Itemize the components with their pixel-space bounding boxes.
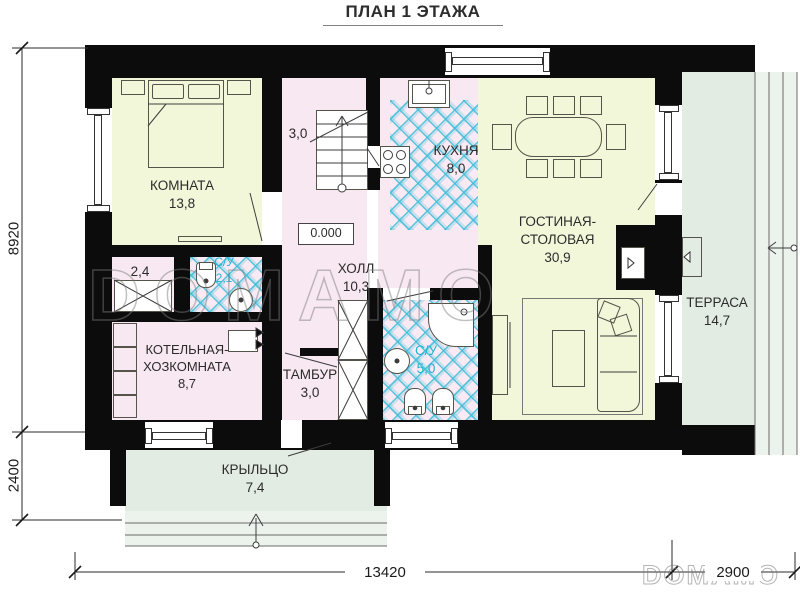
label-living: ГОСТИНАЯ-СТОЛОВАЯ 30,9 [500, 213, 615, 266]
chair [526, 159, 548, 178]
label-hall: ХОЛЛ 10,3 [326, 260, 386, 296]
window-frame [94, 115, 102, 205]
dimension-height-porch: 2400 [6, 436, 23, 516]
wall [367, 288, 383, 420]
window-sill [145, 428, 152, 444]
door-opening [655, 183, 682, 215]
kitchen-sink-basin [412, 84, 446, 104]
bench [178, 236, 222, 242]
room-area: 3,0 [280, 384, 340, 402]
washbasin-icon [229, 288, 253, 312]
page-title: ПЛАН 1 ЭТАЖА [323, 2, 503, 26]
window-frame [152, 432, 206, 440]
dining-table [515, 117, 602, 157]
wall [85, 245, 282, 257]
window-sill [87, 205, 110, 212]
wall [366, 78, 380, 190]
window-sill [659, 173, 679, 180]
stairs-icon [316, 110, 368, 190]
label-closet: 2,4 [116, 263, 164, 281]
wardrobe-icon [338, 300, 368, 360]
wardrobe-icon [338, 360, 368, 420]
window-sill [87, 108, 110, 115]
room-name: ТЕРРАСА [686, 295, 748, 310]
label-stairs: 3,0 [278, 125, 318, 143]
room-area: 13,8 [122, 195, 242, 213]
room-area: 14,7 [672, 312, 762, 330]
room-area: 3,0 [278, 125, 318, 143]
chair [553, 159, 575, 178]
door-opening [366, 146, 380, 168]
chair [526, 96, 548, 115]
wall [262, 257, 282, 420]
room-area: 30,9 [500, 249, 615, 267]
room-name: С/У [415, 343, 437, 358]
room-area: 5,0 [398, 360, 454, 378]
window-sill [659, 105, 679, 112]
window-sill [206, 428, 213, 444]
label-kitchen: КУХНЯ 8,0 [416, 142, 496, 178]
pillow [152, 84, 184, 99]
room-hall-lower [282, 288, 338, 348]
dimension-width-terrace: 2900 [705, 564, 761, 581]
wall [682, 425, 755, 455]
room-name: КОТЕЛЬНАЯ-ХОЗКОМНАТА [143, 342, 231, 374]
wall [374, 448, 390, 506]
coffee-table [552, 330, 585, 387]
shelf [113, 395, 137, 418]
wall [174, 257, 190, 312]
door-opening [262, 192, 282, 245]
room-name: С/У [214, 255, 234, 269]
room-area: 8,0 [416, 160, 496, 178]
window-frame [664, 112, 672, 173]
door-opening [385, 288, 430, 300]
wall [110, 448, 126, 506]
toilet-tank [436, 406, 450, 415]
wall [682, 45, 755, 72]
window-sill [543, 52, 550, 72]
chair [553, 96, 575, 115]
wall [478, 245, 492, 420]
window-frame [452, 57, 543, 65]
window-frame [664, 302, 672, 376]
door-opening [281, 420, 302, 448]
wall [85, 45, 682, 78]
room-area: 2,4 [116, 263, 164, 281]
label-tambour: ТАМБУР 3,0 [280, 366, 340, 402]
wall [430, 288, 478, 300]
nightstand [227, 80, 251, 95]
room-area: 2,1 [196, 271, 252, 287]
wall [300, 348, 338, 356]
room-area: 7,4 [190, 479, 320, 497]
wardrobe-icon [114, 280, 172, 312]
toilet-tank [408, 406, 422, 415]
chair [580, 159, 602, 178]
level-mark: 0.000 [298, 223, 354, 245]
chair [606, 124, 626, 150]
porch-steps [125, 511, 387, 546]
chair [580, 96, 602, 115]
room-name: КОМНАТА [150, 178, 214, 193]
room-area: 8,7 [131, 375, 243, 392]
fireplace-terrace-niche [682, 237, 702, 277]
wall [85, 312, 282, 322]
floor-plan-drawing: ПЛАН 1 ЭТАЖА [0, 0, 800, 600]
label-terrace: ТЕРРАСА 14,7 [672, 294, 762, 330]
label-bedroom: КОМНАТА 13,8 [122, 177, 242, 213]
dimension-height-main: 8920 [6, 199, 23, 279]
dimension-width-main: 13420 [345, 564, 425, 581]
pillow [188, 84, 220, 99]
label-porch: КРЫЛЬЦО 7,4 [190, 461, 320, 497]
nightstand [121, 80, 145, 95]
window-sill [445, 52, 452, 72]
room-name: ГОСТИНАЯ-СТОЛОВАЯ [519, 214, 596, 247]
room-name: КУХНЯ [433, 143, 478, 158]
fireplace-hearth [621, 247, 645, 279]
window-sill [659, 376, 679, 383]
room-name: ТАМБУР [283, 367, 337, 382]
terrace-steps [755, 72, 797, 455]
label-bathroom-small: С/У 2,1 [196, 255, 252, 287]
window-frame [392, 432, 451, 440]
stove-icon [380, 146, 410, 178]
window-sill [385, 428, 392, 444]
label-bathroom: С/У 5,0 [398, 342, 454, 378]
room-name: КРЫЛЬЦО [222, 462, 289, 477]
label-boiler: КОТЕЛЬНАЯ-ХОЗКОМНАТА 8,7 [131, 341, 243, 392]
room-name: ХОЛЛ [338, 261, 375, 276]
tv-stand [492, 315, 508, 395]
window-sill [451, 428, 458, 444]
room-area: 10,3 [326, 278, 386, 296]
